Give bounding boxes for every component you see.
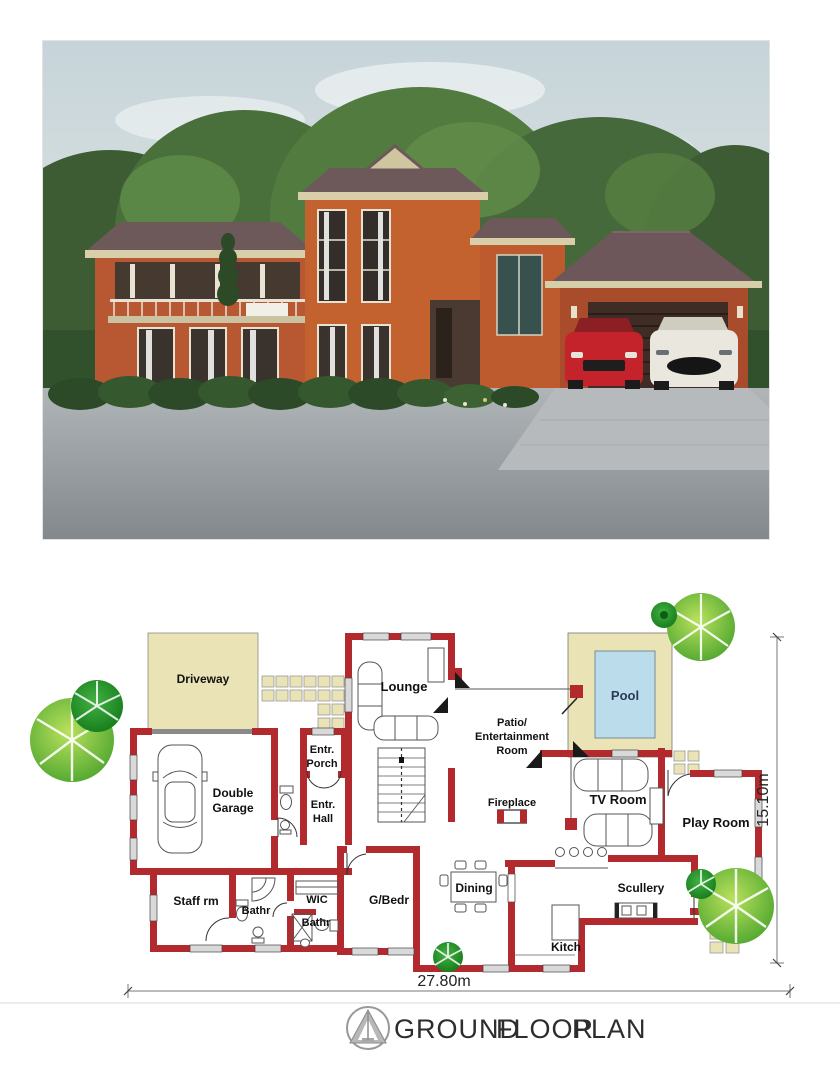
staff-rm-label: Staff rm — [173, 894, 218, 908]
g-bedr-label: G/Bedr — [369, 893, 409, 907]
listing-image: Driveway Lounge Pool Patio/ Entertainmen… — [0, 0, 840, 1087]
floor-plan: Driveway Lounge Pool Patio/ Entertainmen… — [30, 593, 794, 998]
dim-width-label: 27.80m — [417, 973, 470, 990]
title-word-plan: PLAN — [572, 1014, 647, 1044]
entr-hall-label-line2: Hall — [313, 813, 333, 825]
stairs — [378, 748, 425, 822]
dim-depth-label: 15.10m — [755, 773, 772, 826]
bathr2-label: Bathr — [302, 917, 331, 929]
entr-porch-label-line1: Entr. — [310, 744, 334, 756]
play-room-label: Play Room — [682, 815, 749, 830]
house-center-tower — [298, 146, 488, 390]
bathr1-label: Bathr — [242, 905, 271, 917]
tv-room-label: TV Room — [589, 792, 646, 807]
fireplace — [497, 810, 527, 823]
wall-lamp — [571, 306, 577, 318]
house-photo — [0, 40, 830, 540]
patio-label-line1: Patio/ — [497, 717, 527, 729]
upper-window-band — [115, 262, 300, 300]
patio-label-line2: Entertainment — [475, 731, 549, 743]
page-canvas: Driveway Lounge Pool Patio/ Entertainmen… — [0, 0, 840, 1087]
garage-car-icon — [153, 745, 207, 853]
plan-tree-small — [433, 942, 463, 972]
pool-label: Pool — [611, 688, 639, 703]
fireplace-label: Fireplace — [488, 797, 536, 809]
red-car — [565, 318, 643, 389]
kitchen-label: Kitch — [551, 940, 581, 954]
dining-label: Dining — [455, 881, 492, 895]
garage-door-threshold — [152, 729, 252, 734]
scullery-label: Scullery — [618, 881, 665, 895]
white-car — [650, 317, 738, 390]
lounge-label: Lounge — [381, 679, 428, 694]
wall-lamp — [737, 306, 743, 318]
patio-label-line3: Room — [496, 745, 527, 757]
entr-hall-label-line1: Entr. — [311, 799, 335, 811]
kitchen-fixtures — [552, 848, 607, 941]
plan-tree-left — [30, 680, 123, 782]
dim-width: 27.80m — [124, 973, 794, 998]
double-garage-label-line2: Garage — [212, 801, 254, 815]
architect-logo — [347, 1007, 389, 1049]
driveway-label: Driveway — [177, 672, 230, 686]
title-block: GROUND FLOOR PLAN — [0, 1003, 840, 1049]
wic-label: WIC — [306, 894, 327, 906]
double-garage-label-line1: Double — [213, 786, 254, 800]
lounge-furniture — [358, 648, 444, 740]
ground-floor-windows — [138, 328, 278, 384]
entr-porch-label-line2: Porch — [306, 758, 337, 770]
plan-tree-right — [686, 868, 774, 944]
house-connector-block — [470, 218, 575, 390]
scullery-sink — [615, 903, 657, 918]
house-left-wing — [85, 222, 315, 390]
